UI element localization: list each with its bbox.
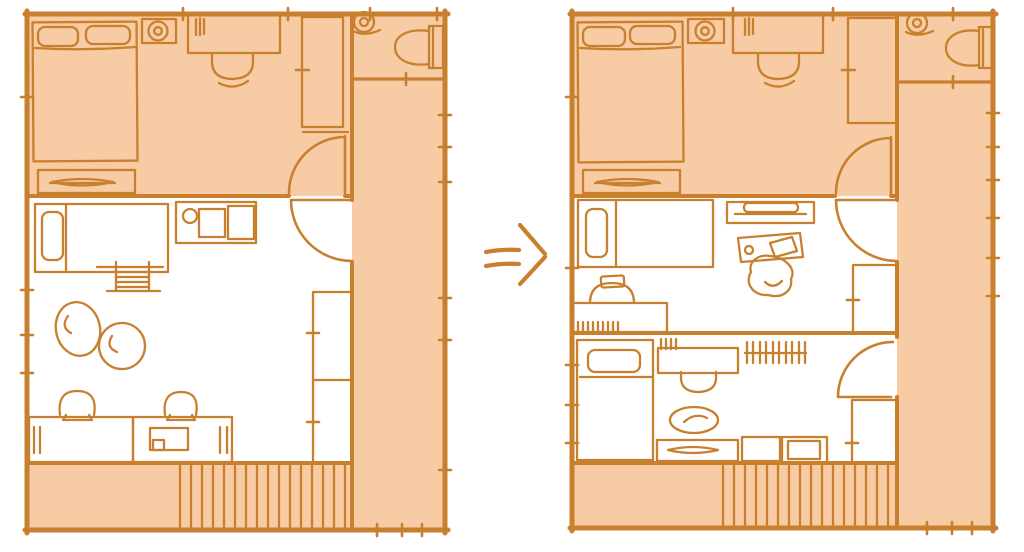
- corridor-floor: [897, 14, 993, 528]
- desk-tablet: [770, 237, 797, 257]
- shelf-item: [744, 203, 798, 212]
- transform-arrow: [486, 225, 545, 284]
- floor-plan-canvas: [0, 0, 1024, 552]
- drawer-knob: [153, 440, 164, 450]
- kids-room-a-door: [836, 200, 897, 261]
- desk-item: [745, 246, 753, 254]
- floor-cushion: [51, 298, 105, 360]
- kids-room-a-furniture: [573, 200, 897, 333]
- kids-room-door: [291, 200, 352, 261]
- floor-cushion: [99, 323, 145, 369]
- drying-rack: [97, 262, 163, 291]
- pillow: [588, 350, 640, 372]
- floor-plan-before: [21, 8, 451, 536]
- basin: [183, 209, 197, 223]
- floor-plan-after: [566, 8, 999, 534]
- study-desk: [658, 348, 738, 373]
- stool: [165, 392, 197, 420]
- dresser-handle: [50, 179, 115, 186]
- counter-box: [199, 209, 225, 237]
- pillow: [42, 212, 63, 260]
- cushion-fold: [684, 416, 707, 422]
- kids-room-furniture: [29, 202, 352, 463]
- floor-cushion: [670, 407, 718, 433]
- kids-room-b-furniture: [577, 339, 897, 463]
- closet: [852, 400, 897, 463]
- beanbag-fold: [765, 281, 782, 286]
- deck-floor: [27, 463, 352, 530]
- low-desk: [29, 417, 133, 462]
- dresser-handle: [595, 179, 660, 186]
- arrow-chevron: [520, 225, 545, 284]
- cushion-fold: [65, 316, 71, 333]
- bedroom-floor: [27, 14, 352, 196]
- chair: [681, 372, 716, 392]
- counter-box: [228, 206, 254, 239]
- floor-plan-comparison: [0, 0, 1024, 552]
- towel-rack: [745, 342, 806, 363]
- cushion-fold: [109, 336, 117, 352]
- stool: [60, 391, 95, 420]
- cabinet-handle: [668, 447, 718, 453]
- arrow-bar: [486, 250, 519, 252]
- low-desk: [133, 417, 232, 462]
- pillow: [586, 209, 607, 257]
- chair-backrest: [601, 275, 625, 287]
- cabinet-inner: [788, 441, 820, 459]
- arrow-bar: [486, 264, 519, 266]
- cabinet: [742, 437, 780, 461]
- desk-side-panel: [220, 427, 227, 453]
- closet: [313, 292, 352, 463]
- kids-room-b-door: [838, 342, 893, 397]
- desk-hatch: [578, 322, 618, 332]
- corridor-floor: [352, 14, 445, 530]
- desk-side-panel: [34, 427, 40, 453]
